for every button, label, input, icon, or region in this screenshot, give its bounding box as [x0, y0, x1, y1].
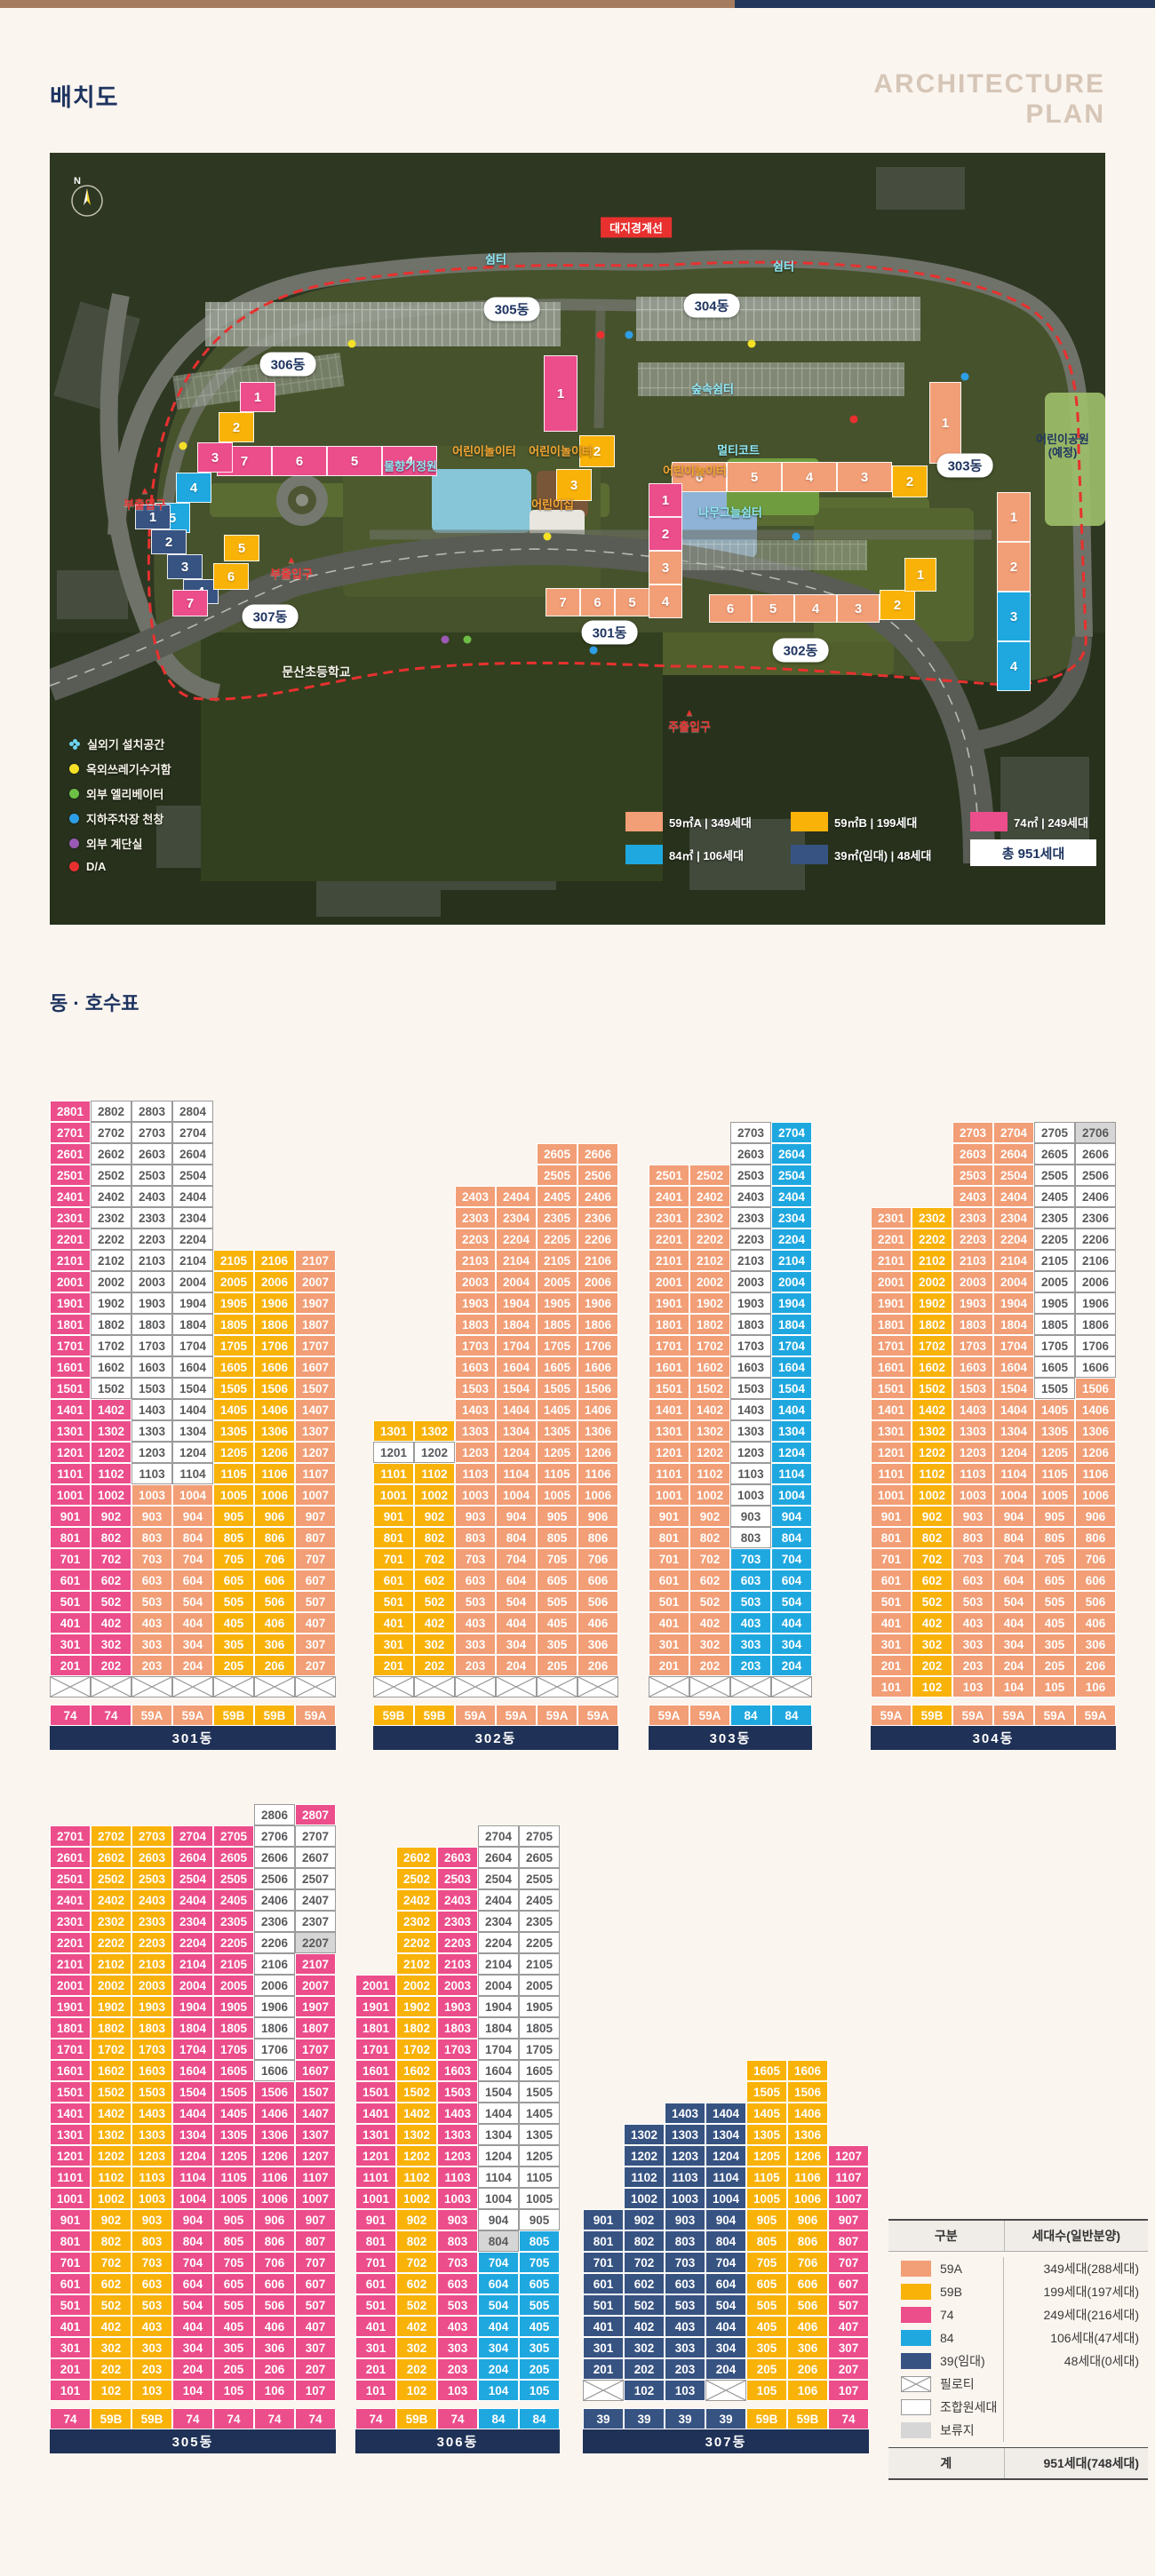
unit-cell: 1901	[649, 1292, 689, 1314]
unit-cell: 402	[912, 1612, 952, 1634]
unit-cell: 2704	[771, 1122, 812, 1143]
unit-cell: 406	[254, 2316, 295, 2337]
unit-cell: 705	[537, 1548, 577, 1570]
floor-row: 2101210221032104210521062107	[50, 1953, 336, 1975]
unit-cell: 905	[213, 2209, 254, 2230]
unit-cell: 1707	[295, 1335, 336, 1356]
map-overlays: 7654123654321123412347656543211234512345…	[50, 153, 1105, 925]
unit-cell: 2305	[519, 1911, 560, 1932]
floor-row: 901902903904905	[355, 2209, 560, 2230]
floor-row: 1901190219031904	[649, 1292, 812, 1314]
unit-cell: 2106	[577, 1250, 618, 1271]
unit-cell: 2106	[254, 1250, 295, 1271]
unit-cell: 1606	[254, 2060, 295, 2081]
unit-cell: 602	[396, 2273, 437, 2294]
unit-cell: 2402	[396, 1889, 437, 1911]
piloti-cell	[373, 1676, 414, 1697]
unit-cell: 2403	[131, 1889, 172, 1911]
unit-cell: 2101	[649, 1250, 689, 1271]
unit-cell: 1904	[993, 1292, 1034, 1314]
summary-type-value: 48세대(0세대)	[1004, 2352, 1148, 2370]
floor-row: 2101210221032104	[649, 1250, 812, 1271]
unit-cell: 502	[396, 2294, 437, 2316]
floor-row: 2403240424052406	[871, 1186, 1116, 1207]
floor-row: 2401240224032404	[649, 1186, 812, 1207]
floor-row: 501502503504505506507	[50, 2294, 336, 2316]
unit-cell: 806	[787, 2230, 828, 2252]
unit-cell: 207	[295, 2358, 336, 2380]
unit-cell: 306	[254, 2337, 295, 2358]
column-type-label: 74	[91, 1705, 131, 1726]
unit-cell: 204	[705, 2358, 746, 2380]
unit-cell: 1605	[537, 1356, 577, 1378]
unit-cell: 806	[1075, 1527, 1116, 1548]
unit-cell: 2302	[91, 1207, 131, 1228]
unit-cell: 1103	[952, 1463, 993, 1484]
unit-cell: 1505	[213, 2081, 254, 2103]
unit-type-legend-label: 59㎡A | 349세대	[669, 814, 752, 831]
column-type-label: 59A	[1034, 1705, 1075, 1726]
unit-cell: 1505	[537, 1378, 577, 1399]
unit-cell: 603	[665, 2273, 705, 2294]
legend-dot-icon	[69, 789, 79, 799]
unit-cell: 1606	[787, 2060, 828, 2081]
unit-cell: 804	[478, 2230, 519, 2252]
unit-cell: 2505	[213, 1868, 254, 1889]
floor-row: 701702703704	[649, 1548, 812, 1570]
unit-cell: 307	[828, 2337, 869, 2358]
unit-cell: 1702	[91, 2039, 131, 2060]
unit-cell: 1706	[254, 2039, 295, 2060]
unit-cell: 1405	[213, 2103, 254, 2124]
unit-cell: 1304	[478, 2124, 519, 2145]
unit-cell: 601	[50, 2273, 91, 2294]
unit-cell: 2704	[172, 1825, 213, 1847]
floor-row: 2501250225032504	[649, 1165, 812, 1186]
unit-cell: 1803	[131, 2017, 172, 2039]
unit-cell: 2005	[213, 1975, 254, 1996]
floor-row: 301302303304305306	[871, 1634, 1116, 1655]
unit-cell: 305	[537, 1634, 577, 1655]
unit-cell: 1302	[91, 1420, 131, 1442]
unit-cell: 104	[172, 2380, 213, 2401]
unit-cell: 1207	[828, 2145, 869, 2167]
unit-cell: 1906	[254, 1996, 295, 2017]
unit-cell: 302	[91, 1634, 131, 1655]
unit-cell: 1002	[624, 2188, 665, 2209]
unit-cell: 501	[50, 1591, 91, 1612]
map-building-segment: 3	[167, 554, 203, 579]
unit-cell: 2702	[91, 1122, 131, 1143]
unit-cell: 1503	[730, 1378, 771, 1399]
column-type-label: 59B	[254, 1705, 295, 1726]
unit-cell: 1205	[213, 1442, 254, 1463]
unit-cell: 602	[912, 1570, 952, 1591]
unit-cell: 605	[1034, 1570, 1075, 1591]
unit-cell: 1204	[496, 1442, 537, 1463]
summary-type-label: 59B	[940, 2285, 962, 2299]
map-building-segment: 6	[580, 588, 615, 616]
unit-cell: 2105	[519, 1953, 560, 1975]
unit-cell: 803	[952, 1527, 993, 1548]
unit-cell: 202	[624, 2358, 665, 2380]
floor-row: 100110021003100410051006	[373, 1484, 618, 1506]
unit-cell: 1602	[91, 1356, 131, 1378]
unit-cell: 503	[730, 1591, 771, 1612]
unit-cell: 1004	[771, 1484, 812, 1506]
unit-cell: 303	[455, 1634, 496, 1655]
unit-cell: 1003	[131, 1484, 172, 1506]
unit-cell: 602	[624, 2273, 665, 2294]
floor-row: 601602603604605606	[373, 1570, 618, 1591]
unit-cell: 1006	[787, 2188, 828, 2209]
legend-dot-icon	[69, 764, 79, 774]
unit-cell: 803	[437, 2230, 478, 2252]
unit-cell: 2103	[730, 1250, 771, 1271]
floor-row: 301302303304305306307	[583, 2337, 869, 2358]
floor-row: 1403140414051406	[583, 2103, 869, 2124]
unit-cell: 2504	[172, 1165, 213, 1186]
column-type-label: 59A	[993, 1705, 1034, 1726]
unit-cell: 802	[912, 1527, 952, 1548]
unit-cell: 2205	[519, 1932, 560, 1953]
floor-row: 501502503504505506507	[50, 1591, 336, 1612]
unit-cell: 407	[828, 2316, 869, 2337]
unit-cell: 2202	[91, 1932, 131, 1953]
floor-row: 16051606	[583, 2060, 869, 2081]
unit-cell: 1501	[50, 2081, 91, 2103]
unit-cell: 1102	[624, 2167, 665, 2188]
unit-cell: 802	[624, 2230, 665, 2252]
unit-cell: 903	[455, 1506, 496, 1527]
unit-cell: 202	[689, 1655, 730, 1676]
unit-cell: 1001	[373, 1484, 414, 1506]
unit-cell: 1402	[396, 2103, 437, 2124]
summary-row-type: 39(임대)	[888, 2349, 1004, 2373]
floor-row: 2801280228032804	[50, 1101, 336, 1122]
unit-cell: 906	[254, 2209, 295, 2230]
column-type-label: 59B	[912, 1705, 952, 1726]
unit-cell: 1605	[213, 1356, 254, 1378]
unit-cell: 1405	[213, 1399, 254, 1420]
unit-cell: 601	[649, 1570, 689, 1591]
unit-cell: 702	[624, 2252, 665, 2273]
floor-row: 1501150215031504150515061507	[50, 1378, 336, 1399]
unit-cell: 404	[478, 2316, 519, 2337]
floor-row: 230123022303230423052306	[871, 1207, 1116, 1228]
unit-cell: 607	[828, 2273, 869, 2294]
map-symbol-legend: 실외기 설치공간옥외쓰레기수거함외부 엘리베이터지하주차장 천창외부 계단실D/…	[69, 735, 171, 881]
unit-cell: 2201	[50, 1228, 91, 1250]
unit-cell: 905	[213, 1506, 254, 1527]
floor-row: 1601160216031604160516061607	[50, 1356, 336, 1378]
unit-cell: 1901	[50, 1292, 91, 1314]
column-type-label: 59A	[1075, 1705, 1116, 1726]
unit-cell: 103	[131, 2380, 172, 2401]
unit-cell: 1901	[871, 1292, 912, 1314]
floor-row: 501502503504505506	[871, 1591, 1116, 1612]
map-building-segment: 2	[219, 412, 254, 442]
unit-cell: 206	[254, 1655, 295, 1676]
unit-cell: 2404	[172, 1889, 213, 1911]
unit-cell: 1204	[172, 2145, 213, 2167]
unit-cell: 403	[665, 2316, 705, 2337]
unit-cell: 401	[355, 2316, 396, 2337]
floor-row: 2102210321042105	[355, 1953, 560, 1975]
unit-cell: 2403	[437, 1889, 478, 1911]
unit-cell: 704	[705, 2252, 746, 2273]
unit-cell: 1301	[50, 1420, 91, 1442]
column-type-label: 59A	[455, 1705, 496, 1726]
unit-cell: 2406	[577, 1186, 618, 1207]
unit-cell: 1304	[705, 2124, 746, 2145]
unit-cell: 1701	[355, 2039, 396, 2060]
floor-row: 1301130213031304	[649, 1420, 812, 1442]
column-type-label: 59A	[295, 1705, 336, 1726]
unit-cell: 1205	[537, 1442, 577, 1463]
unit-cell: 201	[50, 2358, 91, 2380]
unit-cell: 1702	[396, 2039, 437, 2060]
floor-row-1: 101102103104105	[355, 2380, 560, 2401]
unit-cell: 503	[437, 2294, 478, 2316]
column-type-label: 59B	[131, 2408, 172, 2429]
unit-cell: 604	[172, 1570, 213, 1591]
unit-cell: 1201	[373, 1442, 414, 1463]
unit-cell: 2602	[91, 1143, 131, 1165]
floor-row: 301302303304305	[355, 2337, 560, 2358]
column-type-label: 59B	[373, 1705, 414, 1726]
unit-cell: 2001	[871, 1271, 912, 1292]
piloti-cell	[730, 1676, 771, 1697]
floor-row: 15011502150315041505	[355, 2081, 560, 2103]
unit-cell: 1406	[254, 1399, 295, 1420]
unit-cell: 1601	[50, 1356, 91, 1378]
unit-cell: 1505	[519, 2081, 560, 2103]
unit-cell: 2702	[91, 1825, 131, 1847]
unit-cell: 2401	[50, 1186, 91, 1207]
floor-row: 2501250225032504	[50, 1165, 336, 1186]
floor-row: 120112021203120412051206	[871, 1442, 1116, 1463]
unit-cell: 1801	[50, 1314, 91, 1335]
unit-cell: 204	[478, 2358, 519, 2380]
unit-cell: 201	[649, 1655, 689, 1676]
unit-cell: 1603	[131, 1356, 172, 1378]
unit-cell: 1104	[172, 2167, 213, 2188]
piloti-cell	[172, 1676, 213, 1697]
unit-cell: 2006	[254, 1271, 295, 1292]
floor-row: 28062807	[50, 1804, 336, 1825]
floor-row: 401402403404405406407	[583, 2316, 869, 2337]
unit-cell: 1907	[295, 1996, 336, 2017]
unit-cell: 904	[496, 1506, 537, 1527]
unit-cell: 1604	[172, 2060, 213, 2081]
unit-cell: 2605	[537, 1143, 577, 1165]
unit-cell: 702	[414, 1548, 455, 1570]
map-building-label: 301동	[582, 621, 638, 645]
unit-cell: 801	[583, 2230, 624, 2252]
floor-row: 2201220222032204	[649, 1228, 812, 1250]
unit-cell: 1104	[478, 2167, 519, 2188]
unit-cell: 2002	[91, 1975, 131, 1996]
floor-row: 1001100210031004100510061007	[50, 1484, 336, 1506]
unit-cell: 1804	[496, 1314, 537, 1335]
unit-cell: 1107	[295, 2167, 336, 2188]
summary-total-label: 계	[888, 2448, 1005, 2478]
unit-cell: 802	[396, 2230, 437, 2252]
unit-cell: 201	[871, 1655, 912, 1676]
unit-cell: 2703	[131, 1825, 172, 1847]
unit-cell: 1902	[912, 1292, 952, 1314]
unit-cell: 2001	[649, 1271, 689, 1292]
unit-cell: 202	[414, 1655, 455, 1676]
unit-cell: 1903	[730, 1292, 771, 1314]
summary-type-value: 106세대(47세대)	[1004, 2329, 1148, 2347]
unit-cell: 1503	[455, 1378, 496, 1399]
unit-cell: 605	[519, 2273, 560, 2294]
unit-cell: 102	[396, 2380, 437, 2401]
unit-cell: 2004	[172, 1271, 213, 1292]
floor-row: 15051506	[583, 2081, 869, 2103]
entrance-triangle-icon: ▲	[668, 709, 711, 718]
unit-cell: 1903	[131, 1996, 172, 2017]
unit-cell: 806	[254, 2230, 295, 2252]
unit-cell: 504	[771, 1591, 812, 1612]
floor-row: 130113021303130413051306	[373, 1420, 618, 1442]
unit-cell: 607	[295, 2273, 336, 2294]
unit-cell: 2302	[91, 1911, 131, 1932]
unit-cell: 2301	[649, 1207, 689, 1228]
unit-cell: 1803	[131, 1314, 172, 1335]
table-304동: 2703270427052706260326042605260625032504…	[871, 1122, 1116, 1750]
unit-cell: 205	[213, 2358, 254, 2380]
floor-row: 180118021803180418051806	[871, 1314, 1116, 1335]
unit-cell: 701	[373, 1548, 414, 1570]
unit-cell: 402	[91, 1612, 131, 1634]
unit-cell: 903	[131, 1506, 172, 1527]
floor-row: 2502250325042505	[355, 1868, 560, 1889]
map-facility-label: 쉼터	[485, 253, 506, 266]
unit-cell: 805	[519, 2230, 560, 2252]
unit-cell: 704	[496, 1548, 537, 1570]
unit-cell: 1105	[1034, 1463, 1075, 1484]
unit-cell: 2206	[1075, 1228, 1116, 1250]
unit-cell: 804	[172, 1527, 213, 1548]
unit-cell: 1106	[254, 1463, 295, 1484]
summary-type-label: 59A	[940, 2262, 962, 2276]
unit-cell: 105	[213, 2380, 254, 2401]
unit-cell: 2706	[254, 1825, 295, 1847]
unit-cell: 2002	[689, 1271, 730, 1292]
map-facility-label: 숲속쉼터	[691, 383, 734, 396]
unit-cell: 1305	[519, 2124, 560, 2145]
unit-cell: 202	[91, 1655, 131, 1676]
floor-row: 1201120212031204	[649, 1442, 812, 1463]
floor-row-1	[50, 1676, 336, 1697]
floor-row: 26052606	[373, 1143, 618, 1165]
unit-cell: 703	[665, 2252, 705, 2273]
unit-cell: 2105	[213, 1250, 254, 1271]
floor-row: 1703170417051706	[373, 1335, 618, 1356]
unit-cell: 2303	[730, 1207, 771, 1228]
column-type-label: 59B	[213, 1705, 254, 1726]
unit-cell: 1003	[455, 1484, 496, 1506]
unit-cell: 107	[295, 2380, 336, 2401]
unit-cell: 2106	[254, 1953, 295, 1975]
type-footer-row: 3939393959B59B74	[583, 2408, 869, 2429]
unit-cell: 2305	[537, 1207, 577, 1228]
unit-cell: 2403	[952, 1186, 993, 1207]
map-entrance-label: ▲부출입구	[270, 556, 313, 582]
unit-cell: 2705	[519, 1825, 560, 1847]
legend-item: D/A	[69, 860, 171, 873]
unit-cell: 1504	[172, 2081, 213, 2103]
unit-type-legend-item: 39㎡(임대) | 48세대	[791, 843, 970, 866]
type-footer-row: 747459A59A59B59B59A	[50, 1705, 336, 1726]
unit-cell: 1304	[496, 1420, 537, 1442]
english-subtitle-line1: ARCHITECTURE	[873, 69, 1105, 99]
column-type-label: 59B	[746, 2408, 787, 2429]
unit-cell: 1202	[396, 2145, 437, 2167]
unit-cell: 1305	[213, 2124, 254, 2145]
unit-cell: 2204	[172, 1932, 213, 1953]
unit-cell: 1907	[295, 1292, 336, 1314]
unit-cell: 1705	[213, 1335, 254, 1356]
floor-row: 201202203204205206	[871, 1655, 1116, 1676]
unit-cell: 1302	[689, 1420, 730, 1442]
unit-cell: 1206	[577, 1442, 618, 1463]
floor-row: 2503250425052506	[871, 1165, 1116, 1186]
unit-cell: 2304	[771, 1207, 812, 1228]
unit-cell: 606	[254, 2273, 295, 2294]
unit-cell: 2707	[295, 1825, 336, 1847]
map-building-segment: 4	[782, 462, 837, 492]
unit-cell: 1207	[295, 2145, 336, 2167]
unit-cell: 2302	[396, 1911, 437, 1932]
floor-row: 201202203204	[649, 1655, 812, 1676]
unit-cell: 902	[624, 2209, 665, 2230]
unit-cell: 1502	[396, 2081, 437, 2103]
unit-cell: 2701	[50, 1825, 91, 1847]
unit-cell: 1105	[213, 2167, 254, 2188]
summary-type-chip	[901, 2307, 931, 2323]
floor-row: 901902903904905906	[373, 1506, 618, 1527]
unit-cell: 2704	[993, 1122, 1034, 1143]
summary-type-chip	[901, 2330, 931, 2346]
unit-cell: 705	[213, 2252, 254, 2273]
unit-cell: 301	[50, 1634, 91, 1655]
map-facility-label: 멀티코트	[717, 444, 760, 457]
unit-cell: 2804	[172, 1101, 213, 1122]
unit-cell: 1306	[1075, 1420, 1116, 1442]
unit-cell: 502	[912, 1591, 952, 1612]
unit-cell: 2604	[478, 1847, 519, 1868]
floor-row: 16011602160316041605	[355, 2060, 560, 2081]
unit-cell: 503	[131, 2294, 172, 2316]
unit-cell: 1103	[455, 1463, 496, 1484]
unit-cell: 403	[952, 1612, 993, 1634]
unit-cell: 1502	[91, 1378, 131, 1399]
unit-cell: 2504	[478, 1868, 519, 1889]
unit-cell: 1504	[478, 2081, 519, 2103]
column-type-label: 74	[50, 2408, 91, 2429]
unit-cell: 2203	[437, 1932, 478, 1953]
unit-cell: 1704	[172, 2039, 213, 2060]
floor-row: 17011702170317041705	[355, 2039, 560, 2060]
unit-cell: 1203	[665, 2145, 705, 2167]
unit-cell: 1605	[213, 2060, 254, 2081]
unit-cell: 502	[91, 2294, 131, 2316]
unit-cell: 101	[871, 1676, 912, 1697]
